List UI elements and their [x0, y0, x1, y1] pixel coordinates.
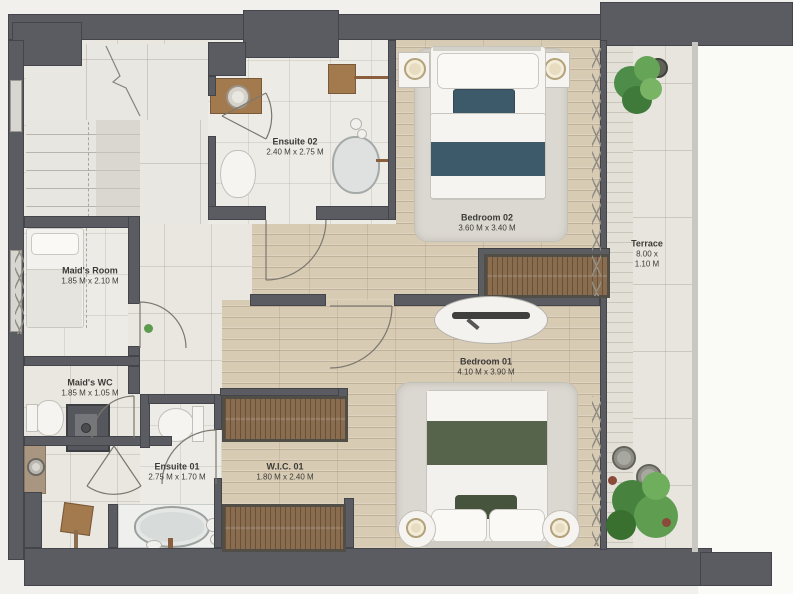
maids-room-dims: 1.85 M x 2.10 M: [61, 277, 118, 287]
wall-bottom-ext: [700, 552, 772, 586]
bed-02-headboard: [433, 47, 541, 51]
bedroom-02-lamp-right-icon: [544, 58, 566, 80]
terrace-outer-edge: [692, 42, 698, 552]
bed-02-blanket-band: [431, 142, 545, 176]
stairs-mid-shade: [96, 120, 140, 224]
wall-maids-room-right: [128, 216, 140, 304]
terrace-plant-top-icon: [614, 56, 668, 116]
ensuite-01-toilet-tank: [192, 406, 204, 442]
bedroom-01-double-bed: [426, 390, 548, 550]
room-label-ensuite-02: Ensuite 02 2.40 M x 2.75 M: [266, 136, 323, 157]
bedroom-01-name: Bedroom 01: [457, 356, 514, 367]
maids-wc-toilet-icon: [34, 400, 64, 436]
curtain-zigzag-terrace-top: [592, 48, 601, 296]
hall-plant-icon: [144, 324, 153, 333]
curtain-zigzag-terrace-bottom: [592, 396, 601, 546]
plant-flower: [662, 518, 671, 527]
curtain-zigzag-maids-window: [15, 250, 24, 334]
maids-wc-toilet-tank: [26, 404, 38, 432]
bedroom-02-dresser: [478, 248, 610, 298]
ensuite-01-dims: 2.75 M x 1.70 M: [148, 473, 205, 483]
bed-01-blanket-band: [427, 421, 547, 465]
floor-plan: Maid's Room 1.85 M x 2.10 M Maid's WC 1.…: [0, 0, 793, 594]
terrace-name: Terrace: [631, 238, 663, 249]
bed-02-teal-cushion: [453, 89, 515, 115]
wall-ensuite-01-marble-stub: [108, 504, 118, 548]
wall-ensuite-02-left-b: [208, 136, 216, 212]
room-label-maids-room: Maid's Room 1.85 M x 2.10 M: [61, 265, 118, 286]
wall-ensuite-02-bottom-right: [316, 206, 396, 220]
bed-01-pillow-right: [489, 509, 545, 543]
wall-top-block-right: [600, 2, 793, 46]
ensuite-02-toilet-icon: [220, 150, 256, 198]
ensuite-02-shelf: [328, 64, 356, 94]
bedroom-01-tv-console: [434, 296, 548, 344]
pedestal-stem: [74, 530, 78, 548]
bedroom-01-lamp-right-icon: [550, 518, 570, 538]
room-label-wic-01: W.I.C. 01 1.80 M x 2.40 M: [256, 461, 313, 482]
ensuite-02-bathtub-icon: [332, 136, 380, 194]
window-left-stairs: [10, 80, 22, 132]
ensuite-02-dims: 2.40 M x 2.75 M: [266, 148, 323, 158]
wall-ensuite-02-column: [208, 42, 246, 76]
plant-leaf: [642, 472, 670, 500]
bedroom-02-name: Bedroom 02: [458, 212, 515, 223]
plant-leaf: [634, 494, 678, 538]
wall-ensuite-01-right-b: [214, 478, 222, 548]
wall-ensuite-02-left-a: [208, 76, 216, 96]
bedroom-02-double-bed: [430, 46, 546, 200]
wic-wardrobe-top: [222, 396, 348, 442]
room-label-ensuite-01: Ensuite 01 2.75 M x 1.70 M: [148, 461, 205, 482]
maids-bed-pillow: [31, 233, 79, 255]
wall-maids-wc-top: [24, 356, 140, 366]
maids-wc-dims: 1.85 M x 1.05 M: [61, 389, 118, 399]
bed-01-pillow-left: [431, 509, 487, 543]
stairs-dashed-line: [88, 122, 90, 222]
wall-maids-wc-right: [128, 366, 140, 394]
wall-ensuite-01-right-a: [214, 394, 222, 430]
plant-leaf: [640, 78, 662, 100]
terrace-dims-line1: 8.00 x: [631, 250, 663, 260]
stairs-landing-side: [140, 120, 208, 224]
ensuite-02-name: Ensuite 02: [266, 136, 323, 147]
plant-flower: [608, 476, 617, 485]
shower-drain-icon: [81, 423, 91, 433]
wall-top-block-mid: [243, 10, 339, 58]
terrace-plant-bottom-icon: [606, 466, 684, 558]
bed-02-duvet: [430, 113, 546, 199]
room-label-bedroom-02: Bedroom 02 3.60 M x 3.40 M: [458, 212, 515, 233]
washing-machine-icon: [27, 458, 45, 476]
bedroom-02-dims: 3.60 M x 3.40 M: [458, 224, 515, 234]
room-label-bedroom-01: Bedroom 01 4.10 M x 3.90 M: [457, 356, 514, 377]
wall-ensuite-01-top: [148, 394, 224, 404]
plant-leaf: [606, 510, 636, 540]
terrace-dims-line2: 1.10 M: [631, 260, 663, 270]
ensuite-01-name: Ensuite 01: [148, 461, 205, 472]
wall-maids-room-right-stub: [128, 346, 140, 356]
wic-wardrobe-bottom: [222, 504, 346, 552]
wall-wic-top: [220, 388, 346, 396]
wic-01-dims: 1.80 M x 2.40 M: [256, 473, 313, 483]
ensuite-01-faucet-icon: [168, 538, 173, 548]
tv-icon: [452, 312, 530, 319]
wall-lobby-block: [24, 492, 42, 548]
outside-area: [698, 44, 793, 594]
maids-wc-name: Maid's WC: [61, 377, 118, 388]
ensuite-02-sink-icon: [226, 85, 250, 109]
bed-02-pillow: [437, 53, 539, 89]
wall-ensuite-02-right: [388, 40, 396, 220]
wall-maids-room-top: [24, 216, 140, 228]
bedroom-01-dims: 4.10 M x 3.90 M: [457, 368, 514, 378]
wic-01-name: W.I.C. 01: [256, 461, 313, 472]
room-label-terrace: Terrace 8.00 x 1.10 M: [631, 238, 663, 269]
wall-bedroom-divider-left: [250, 294, 326, 306]
bedroom-02-lamp-left-icon: [404, 58, 426, 80]
bedroom-01-lamp-left-icon: [406, 518, 426, 538]
wall-ensuite-02-bottom-left: [208, 206, 266, 220]
maids-room-name: Maid's Room: [61, 265, 118, 276]
ensuite-02-toiletry-icon-2: [357, 129, 367, 139]
ensuite-02-towel-bar-icon: [354, 76, 388, 79]
bed-01-foot-fold: [427, 391, 547, 424]
room-label-maids-wc: Maid's WC 1.85 M x 1.05 M: [61, 377, 118, 398]
